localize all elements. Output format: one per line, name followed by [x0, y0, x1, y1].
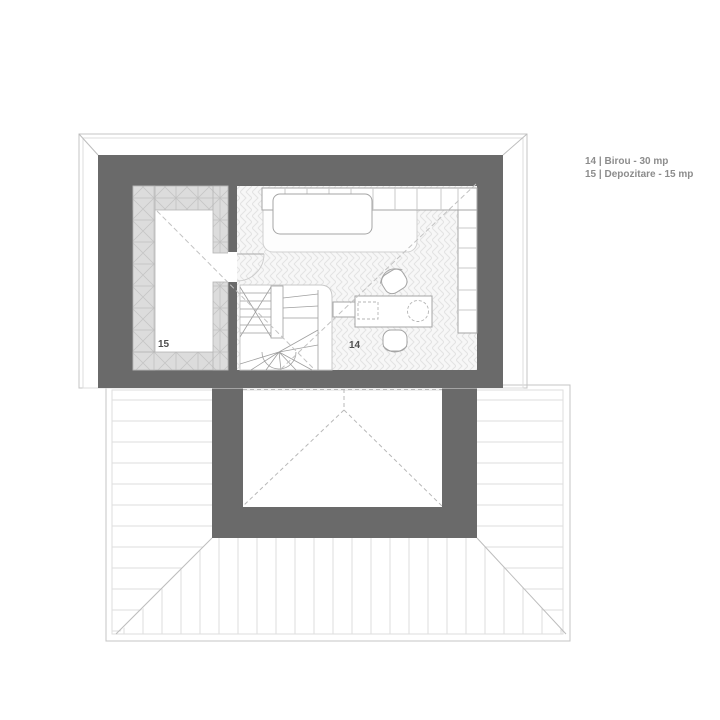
desk-return [333, 302, 355, 317]
floor-plan-drawing: 15 [0, 0, 720, 720]
lower-roof-hip-right [477, 538, 566, 634]
upper-roof-hip-topleft [79, 134, 98, 155]
sofa [273, 194, 372, 234]
staircase [240, 285, 332, 370]
void-roof-dashed-lines [243, 389, 442, 506]
stool-chair [383, 330, 407, 352]
legend-item-birou: 14 | Birou - 30 mp [585, 156, 668, 167]
door-opening [228, 252, 237, 282]
lower-roof-bottom-hatch [124, 538, 561, 634]
shelf-band-left [133, 186, 155, 370]
lower-roof-hip-left [116, 538, 212, 634]
room-depozitare: 15 [133, 186, 228, 370]
shelf-band-right-upper [213, 186, 228, 253]
lower-level-walls [212, 385, 477, 538]
wall-shelves-right [458, 210, 477, 333]
legend: 14 | Birou - 30 mp 15 | Depozitare - 15 … [585, 156, 693, 180]
room-label-15: 15 [158, 339, 170, 350]
room-label-14: 14 [349, 340, 361, 351]
lower-wall-ring [212, 385, 477, 538]
floor-plan: 15 [0, 0, 720, 720]
shelf-band-right-lower [213, 282, 228, 370]
lower-roof-right-hatch [477, 400, 563, 631]
legend-item-depozitare: 15 | Depozitare - 15 mp [585, 169, 693, 180]
